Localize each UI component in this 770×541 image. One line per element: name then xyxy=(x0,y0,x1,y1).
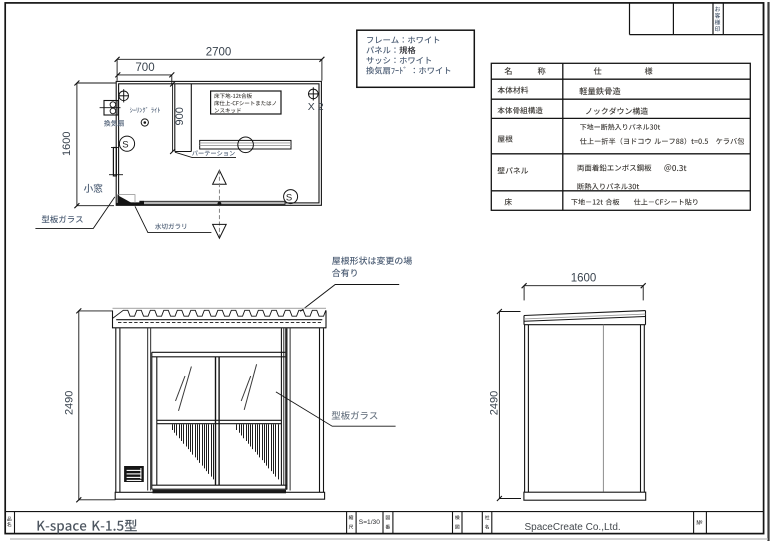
svg-text:2700: 2700 xyxy=(206,46,232,58)
svg-text:S: S xyxy=(286,192,292,203)
svg-text:1600: 1600 xyxy=(61,131,73,155)
svg-text:900: 900 xyxy=(174,107,186,125)
svg-text:X 2: X 2 xyxy=(308,101,324,113)
svg-text:1600: 1600 xyxy=(571,272,597,284)
svg-text:SpaceCreate Co.,Ltd.: SpaceCreate Co.,Ltd. xyxy=(525,522,621,533)
svg-text:2490: 2490 xyxy=(489,391,501,415)
svg-text:S=1/30: S=1/30 xyxy=(359,519,380,526)
svg-text:700: 700 xyxy=(135,62,154,74)
svg-text:S: S xyxy=(122,140,128,151)
svg-text:2490: 2490 xyxy=(64,391,76,415)
